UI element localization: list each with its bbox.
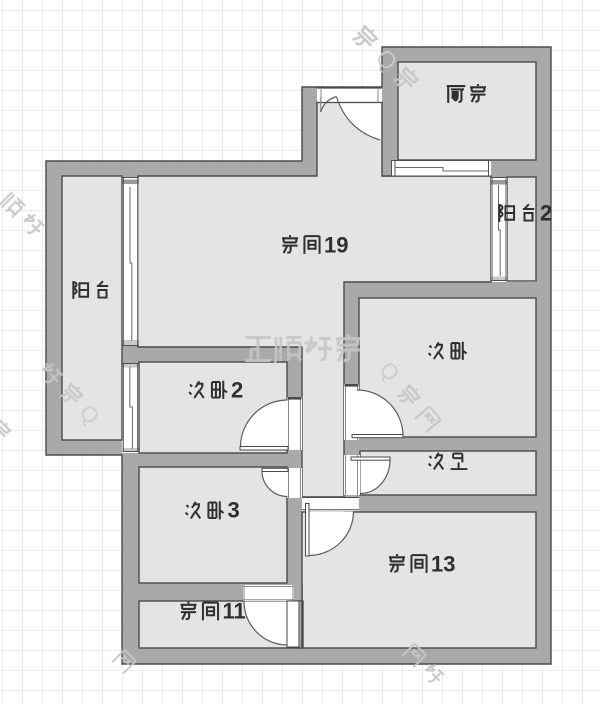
- svg-text:13: 13: [431, 552, 455, 577]
- svg-text:2: 2: [231, 378, 243, 403]
- svg-text:11: 11: [223, 599, 246, 624]
- svg-text:19: 19: [324, 233, 348, 258]
- svg-text:3: 3: [228, 498, 240, 523]
- svg-text:2: 2: [540, 201, 552, 226]
